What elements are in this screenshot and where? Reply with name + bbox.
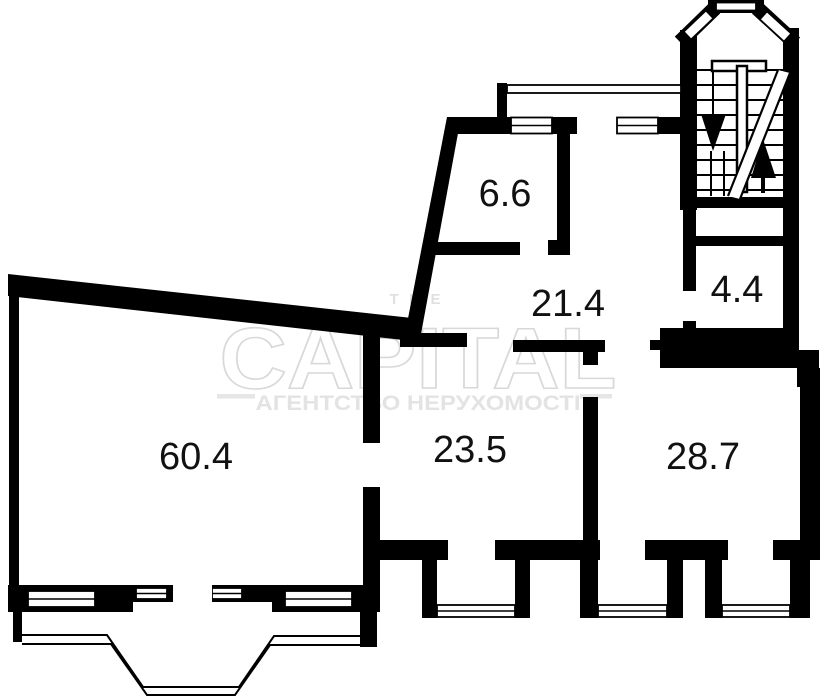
stairwell-left-wall — [680, 30, 697, 210]
top-wall-segment — [658, 117, 681, 134]
bottom-wall-segment — [377, 540, 448, 560]
window-bay-leg — [705, 558, 722, 618]
window-bay-leg — [422, 558, 437, 618]
room-23-5-label: 23.5 — [433, 429, 507, 471]
porch-front-wall — [507, 85, 681, 93]
thick-wall-notch — [650, 340, 660, 350]
room-6-6-bottom-wall — [430, 242, 520, 255]
bay-outline-outer — [22, 635, 360, 687]
bathroom-left-wall — [683, 208, 696, 291]
room-60-4-right-wall-upper — [363, 318, 380, 443]
room-60-4-label: 60.4 — [159, 436, 233, 478]
room-6-6-right-wall — [557, 130, 570, 255]
bay-angled-windows — [688, 15, 787, 37]
stairs — [697, 61, 790, 199]
watermark-subtitle: АГЕНТСТВО НЕРУХОМОСТІ — [256, 392, 581, 415]
window-bay-leg — [580, 558, 598, 618]
bay-door-opening — [173, 583, 212, 604]
room-6-6-label: 6.6 — [479, 173, 532, 215]
room-60-4-left-wall — [9, 276, 19, 612]
partition-stub — [583, 347, 598, 365]
hall-partition-left — [405, 333, 467, 347]
stairwell-bottom-wall — [680, 197, 786, 208]
floor-plan: THE CAPITAL АГЕНТСТВО НЕРУХОМОСТІ — [0, 0, 835, 700]
stairwell-bay-window — [716, 3, 756, 11]
bay-window-outline — [22, 635, 360, 695]
bathroom-top-wall — [696, 236, 783, 246]
bottom-wall-segment — [773, 540, 820, 560]
watermark-dash-left — [217, 394, 255, 399]
room-21-4-label: 21.4 — [531, 283, 605, 325]
window-bay-leg — [790, 558, 810, 618]
building-right-wall-lower — [800, 368, 820, 560]
bathroom-bottom-thick-wall — [660, 328, 799, 368]
room-divider-23-28 — [583, 397, 598, 545]
room-4-4-label: 4.4 — [711, 269, 764, 311]
floor-plan-drawing: THE CAPITAL АГЕНТСТВО НЕРУХОМОСТІ — [0, 0, 835, 700]
room-60-4-sloped-top-wall — [8, 274, 412, 341]
bay-pier-left — [13, 612, 22, 642]
bay-pier-right — [360, 612, 377, 647]
window-bay-leg — [515, 558, 530, 618]
bottom-wall-segment — [495, 540, 600, 560]
walls — [8, 0, 820, 647]
bottom-wall-segment — [645, 540, 728, 560]
room-28-7-label: 28.7 — [666, 436, 740, 478]
window-bay-leg — [667, 558, 683, 618]
